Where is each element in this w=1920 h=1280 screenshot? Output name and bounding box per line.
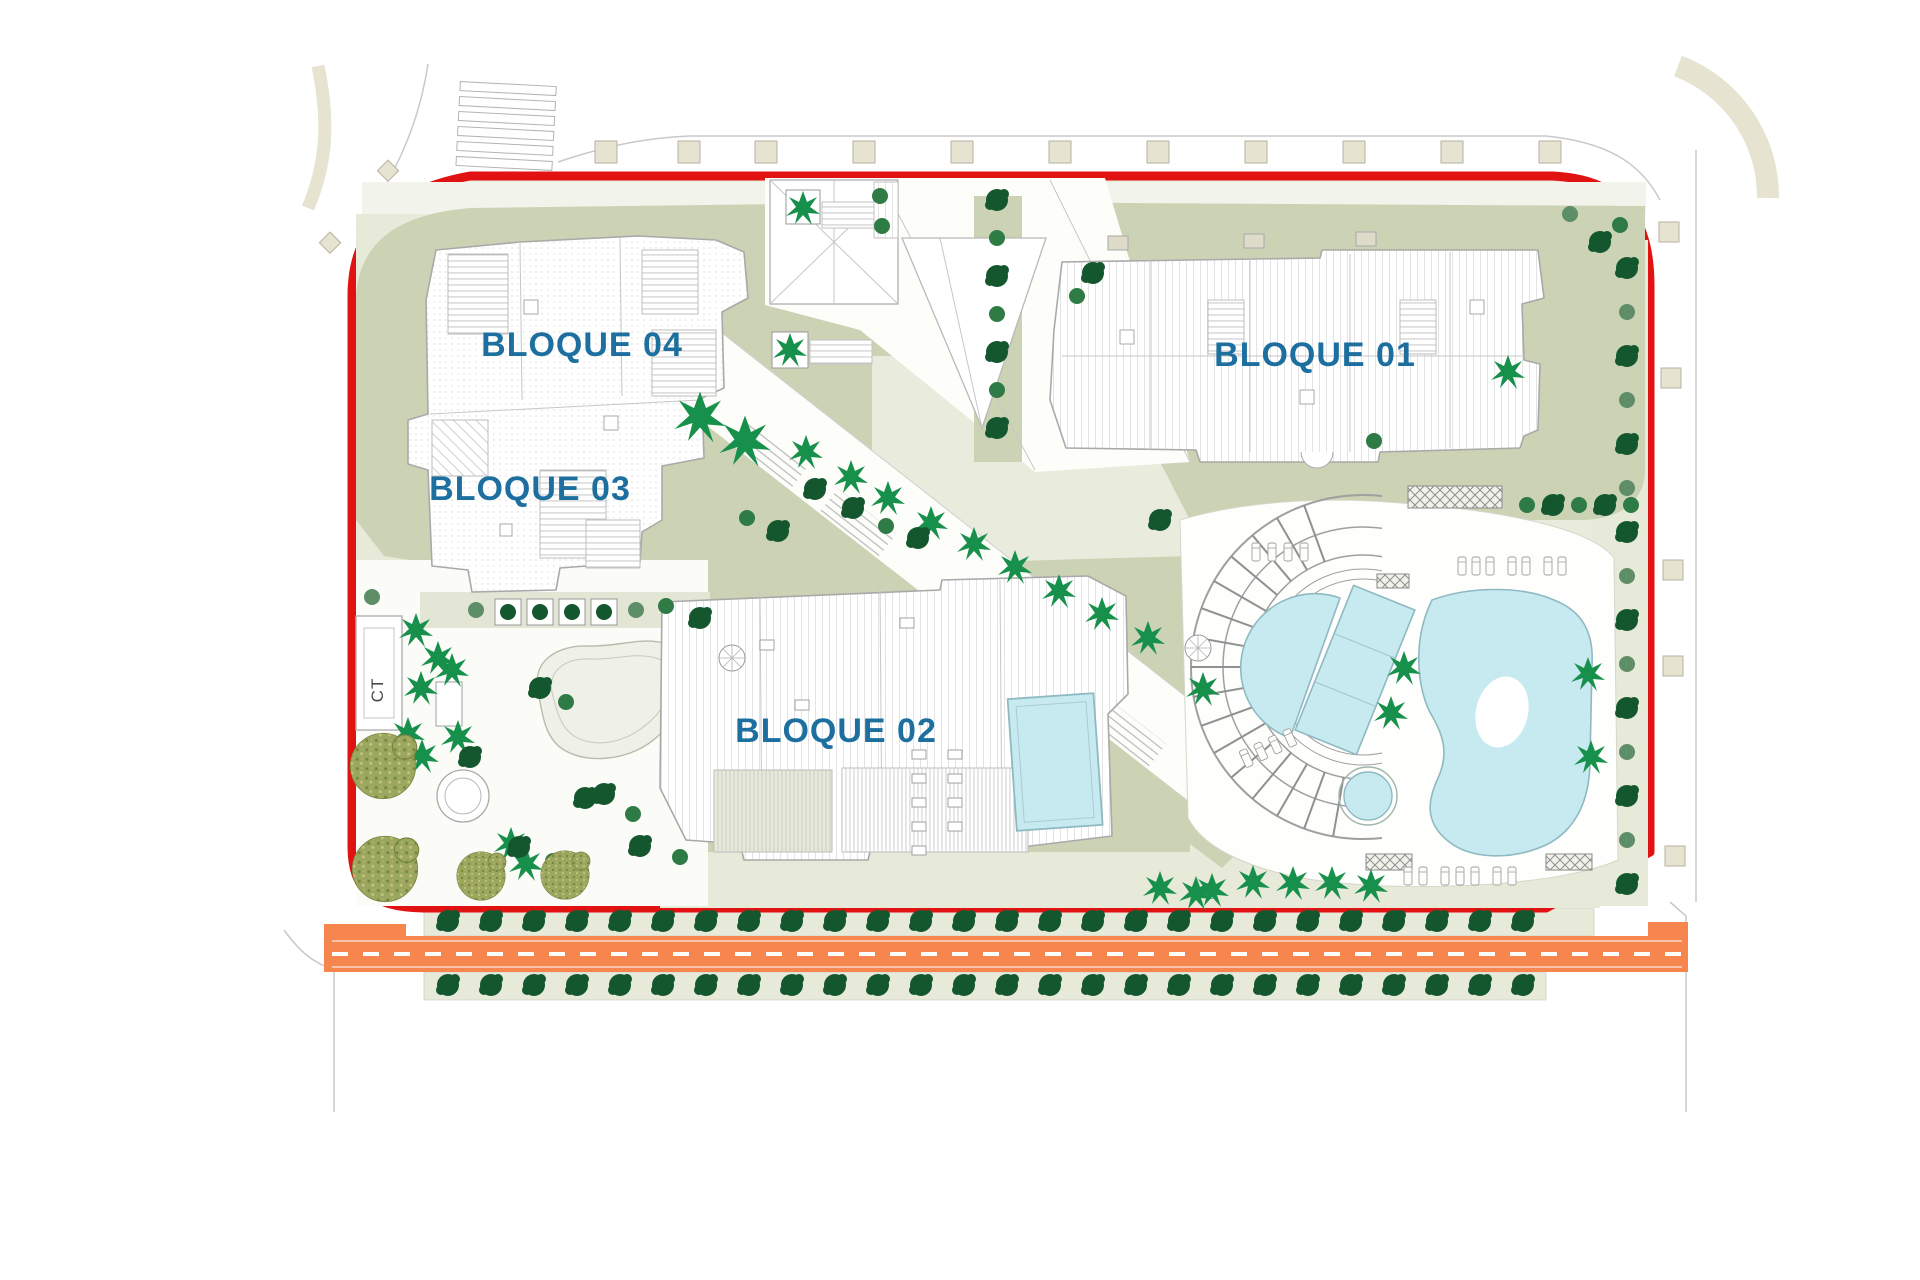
olive-tree-icon <box>351 734 417 799</box>
planter-tree-icon <box>527 599 553 625</box>
tree-icon <box>364 589 380 605</box>
planter-tree-icon <box>495 599 521 625</box>
tree-icon <box>989 306 1005 322</box>
road-stub-right <box>1648 922 1688 938</box>
pedestrian-crossing <box>456 82 556 171</box>
tree-icon <box>558 694 574 710</box>
tree-icon <box>658 598 674 614</box>
tree-icon <box>1619 832 1635 848</box>
planter-tree-icon <box>591 599 617 625</box>
sidewalk-strip-south <box>424 972 1546 1000</box>
tree-icon <box>1519 497 1535 513</box>
transformer-box <box>356 616 402 730</box>
tree-icon <box>1619 480 1635 496</box>
road-stub-left <box>324 924 406 938</box>
tree-icon <box>1619 656 1635 672</box>
olive-tree-icon <box>541 851 590 899</box>
tree-icon <box>468 602 484 618</box>
tree-icon <box>1623 497 1639 513</box>
tree-icon <box>878 518 894 534</box>
tree-icon <box>874 218 890 234</box>
label-bloque-01: BLOQUE 01 <box>1214 336 1416 374</box>
tree-icon <box>625 806 641 822</box>
tree-icon <box>1571 497 1587 513</box>
label-bloque-04: BLOQUE 04 <box>481 326 683 364</box>
jacuzzi-pool <box>1344 772 1392 820</box>
tree-icon <box>1562 206 1578 222</box>
transformer-label: CT <box>368 678 387 703</box>
tree-icon <box>989 230 1005 246</box>
rooftop-pool <box>1008 693 1103 831</box>
olive-tree-icon <box>457 852 506 900</box>
tree-icon <box>1619 744 1635 760</box>
tree-icon <box>739 510 755 526</box>
street-corner-arc <box>1678 66 1768 198</box>
tree-icon <box>872 188 888 204</box>
tree-icon <box>1366 433 1382 449</box>
tree-icon <box>1612 217 1628 233</box>
tree-icon <box>1619 392 1635 408</box>
median-strip <box>308 66 325 208</box>
label-bloque-02: BLOQUE 02 <box>735 712 937 750</box>
tree-icon <box>1619 304 1635 320</box>
olive-tree-icon <box>353 837 419 902</box>
site-plan-drawing: CT <box>0 0 1920 1280</box>
tree-icon <box>1619 568 1635 584</box>
tree-icon <box>1069 288 1085 304</box>
planter-tree-icon <box>559 599 585 625</box>
tree-icon <box>672 849 688 865</box>
site-plan-canvas: CT <box>0 0 1920 1280</box>
tree-icon <box>989 382 1005 398</box>
label-bloque-03: BLOQUE 03 <box>429 470 631 508</box>
garden-kiosk <box>436 682 462 726</box>
tree-icon <box>628 602 644 618</box>
